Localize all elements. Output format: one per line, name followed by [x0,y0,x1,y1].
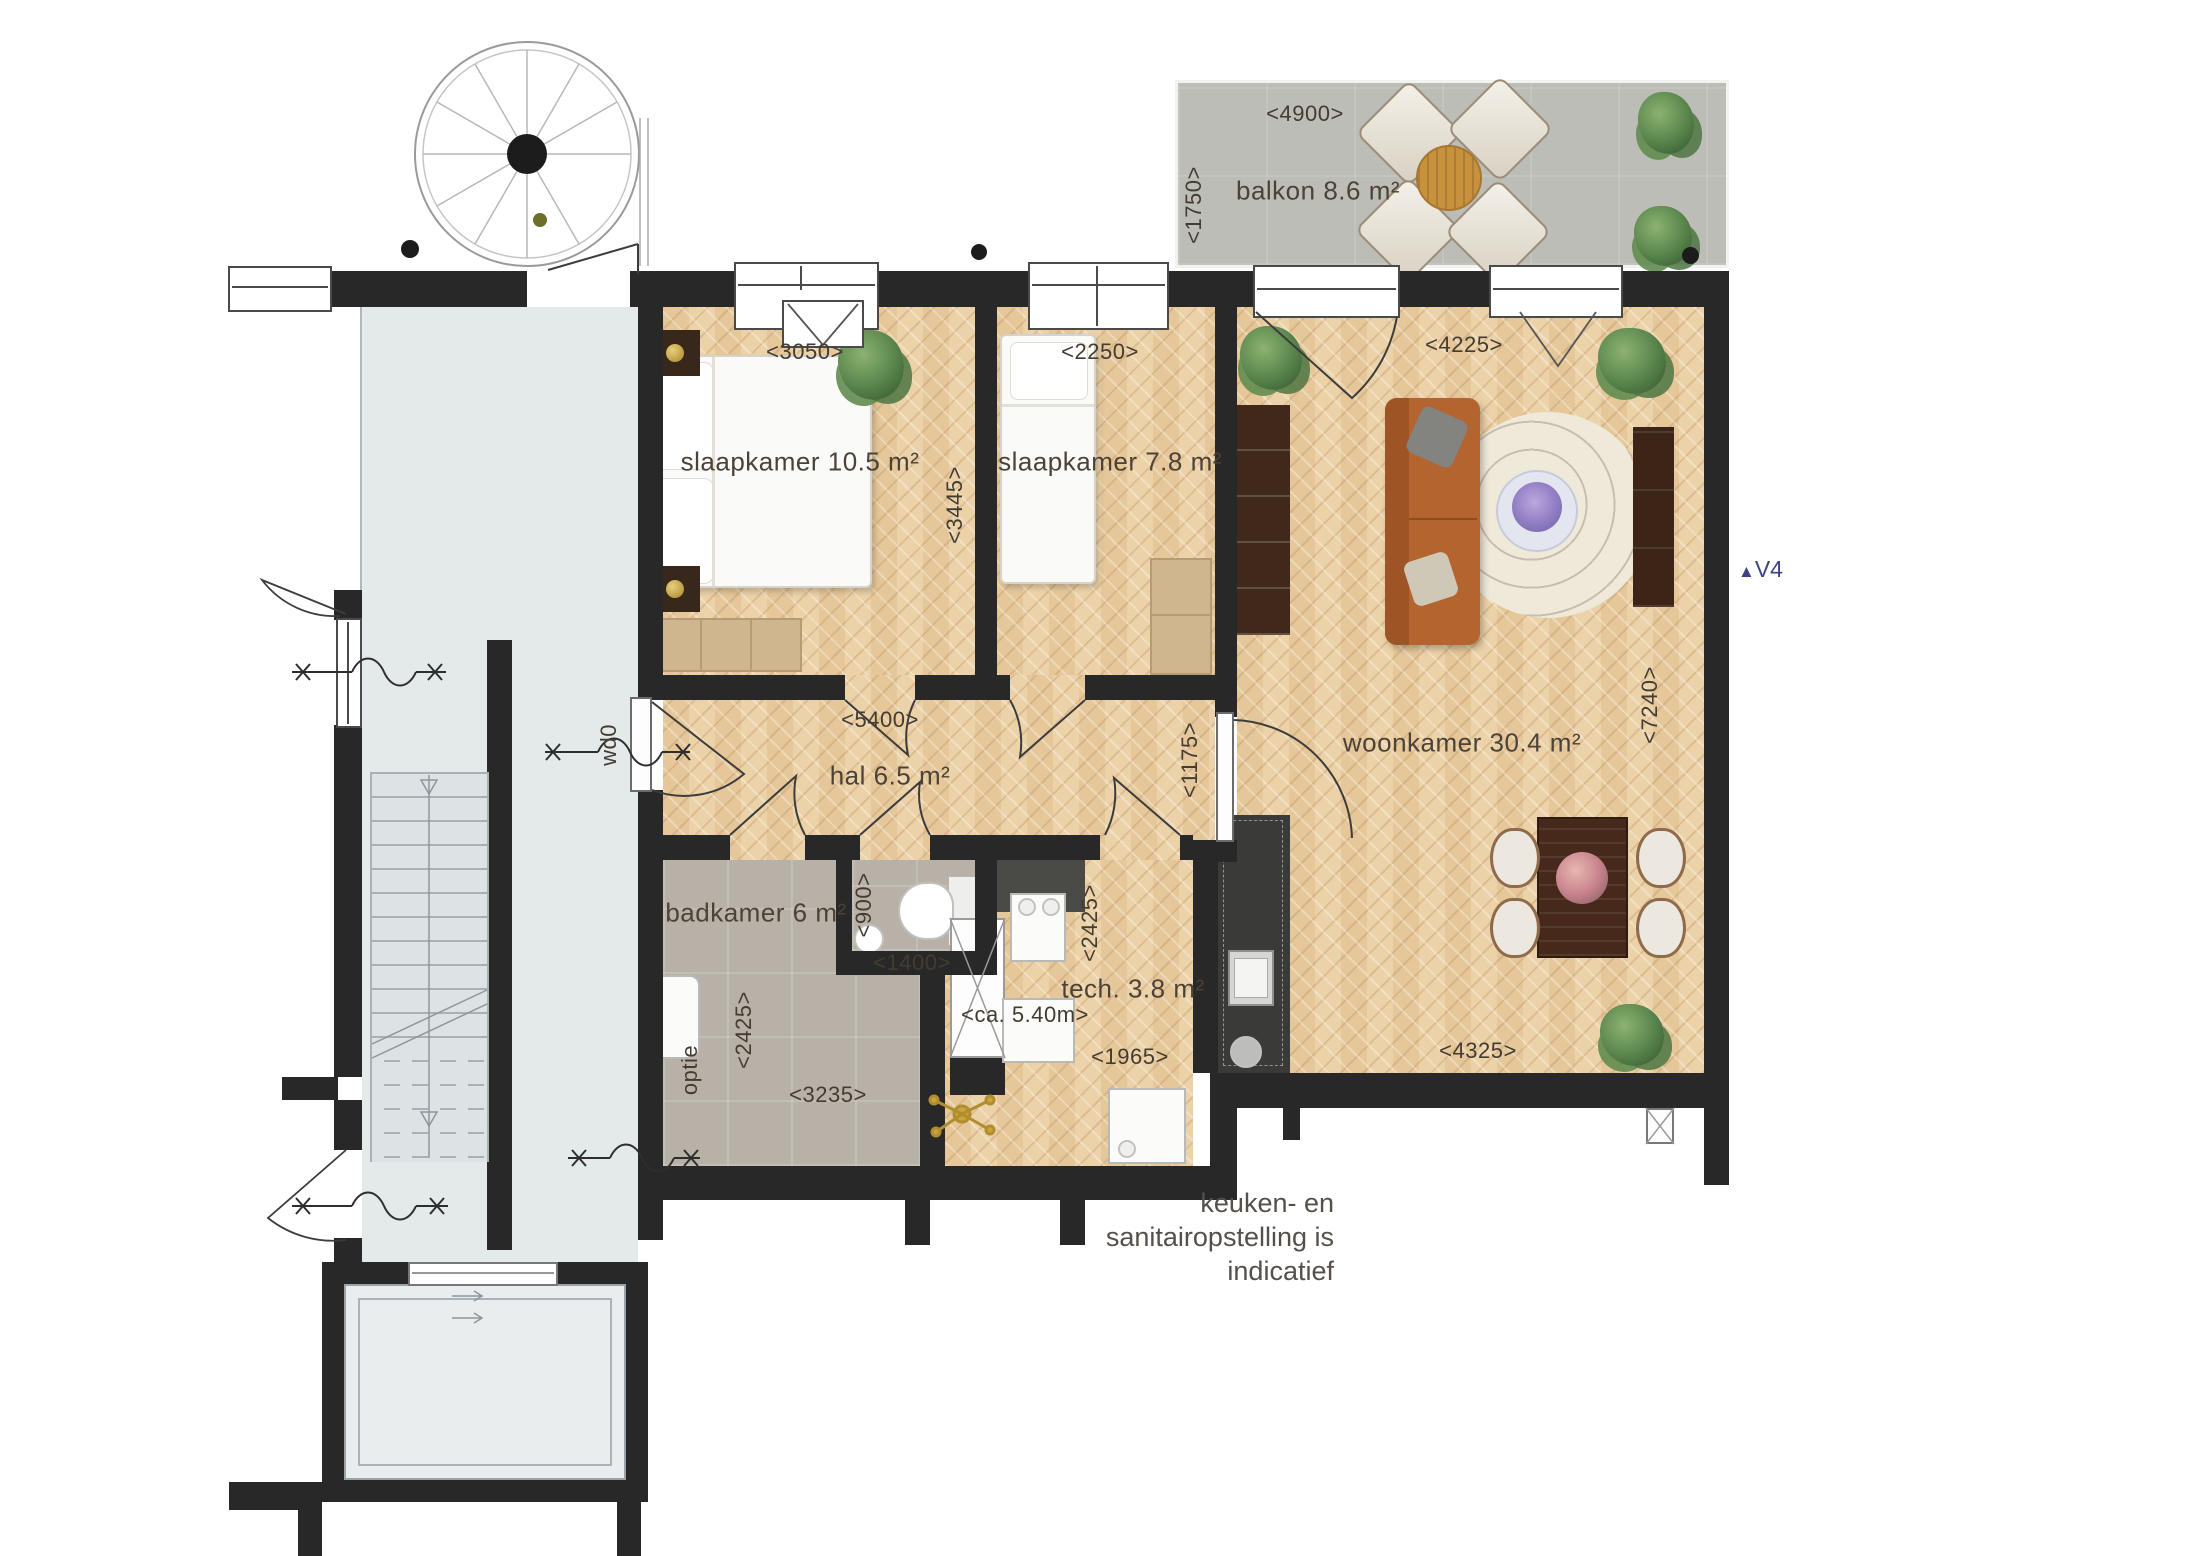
linework-overlay [0,0,2200,1556]
room-label-slaapkamer1: slaapkamer 10.5 m² [681,447,920,478]
triangle-icon: ▲ [1738,562,1755,581]
view-marker-v4: ▲V4 [1738,556,1783,583]
section-cut-symbols [292,659,700,1220]
point-marker [971,244,987,260]
label-entrance-door: wd0 [596,724,622,766]
dim-slaapkamer2-width: <2250> [1061,339,1139,365]
gold-light-icon [930,1096,994,1136]
dim-woonkamer-bottom: <4325> [1439,1038,1517,1064]
dim-balkon-width: <4900> [1266,101,1344,127]
dim-woonkamer-right: <7240> [1637,666,1663,744]
caption-line2: indicatief [1000,1254,1334,1288]
floor-plan: balkon 8.6 m² <4900> <1750> slaapkamer 1… [0,0,2200,1556]
room-label-badkamer: badkamer 6 m² [665,898,846,929]
dim-hal-door: <1175> [1177,722,1203,798]
room-label-hal: hal 6.5 m² [830,761,951,792]
room-label-woonkamer: woonkamer 30.4 m² [1343,728,1581,759]
label-optie: optie [677,1045,703,1095]
dim-woonkamer-top: <4225> [1425,332,1503,358]
room-label-tech: tech. 3.8 m² [1061,974,1204,1005]
dim-tech-depth: <2425> [1077,884,1103,962]
dim-toilet-depth: <900> [851,873,877,938]
room-label-slaapkamer2: slaapkamer 7.8 m² [998,447,1222,478]
elevator-door-arrows [452,1291,482,1323]
note-tech-length: <ca. 5.40m> [961,1002,1089,1028]
caption-line1: keuken- en sanitairopstelling is [1000,1186,1334,1254]
dim-badkamer-width: <3235> [789,1082,867,1108]
dim-balkon-depth: <1750> [1181,166,1207,244]
dim-tech-width: <1965> [1091,1044,1169,1070]
view-marker-label: V4 [1755,556,1783,582]
spiral-staircase-icon [401,42,648,274]
dim-toilet-width: <1400> [873,950,951,976]
dim-slaapkamer1-height: <3445> [942,466,968,544]
shaft-cross-icons [950,918,1674,1144]
dim-badkamer-depth: <2425> [731,991,757,1069]
plan-caption: keuken- en sanitairopstelling is indicat… [1000,1186,1334,1288]
room-label-balkon: balkon 8.6 m² [1236,176,1400,207]
dim-hal-width: <5400> [841,707,919,733]
dim-slaapkamer1-width: <3050> [766,339,844,365]
stair-symbols [372,775,487,1158]
